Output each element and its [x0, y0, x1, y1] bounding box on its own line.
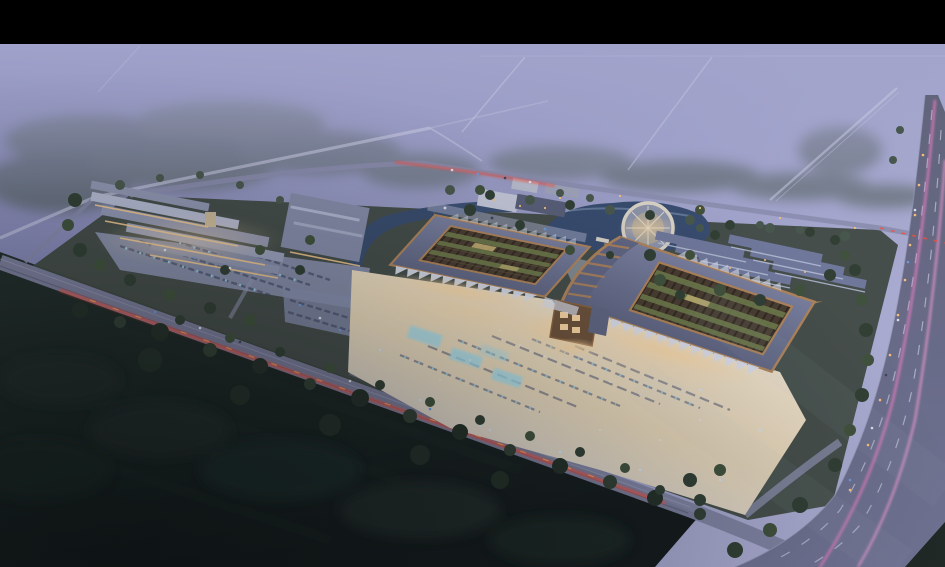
letterbox-top: [0, 0, 945, 44]
scene: [0, 44, 945, 567]
vignette: [0, 44, 945, 567]
rendering-stage: [0, 0, 945, 567]
aerial-rendering: [0, 0, 945, 567]
